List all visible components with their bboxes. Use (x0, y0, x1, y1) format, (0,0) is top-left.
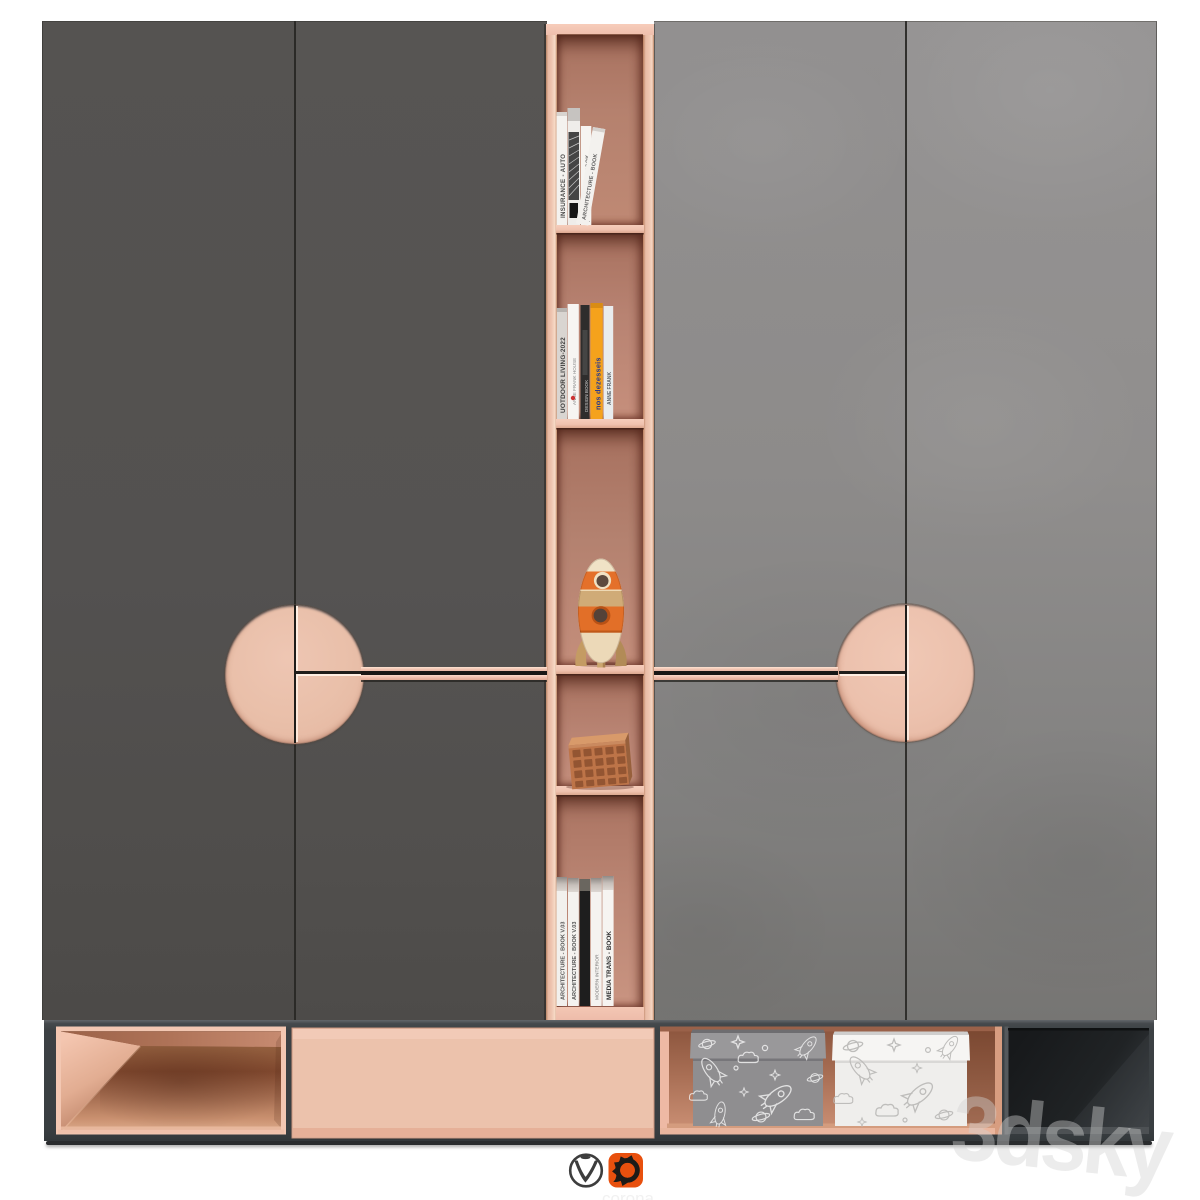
svg-text:MEDIA TRANS - BOOK: MEDIA TRANS - BOOK (606, 931, 613, 1000)
svg-text:UOTDOOR LIVING-2022: UOTDOOR LIVING-2022 (560, 337, 567, 413)
svg-text:INSURANCE - AUTO: INSURANCE - AUTO (560, 154, 567, 218)
svg-text:3dsky: 3dsky (947, 1075, 1178, 1200)
svg-text:corona: corona (602, 1189, 655, 1200)
svg-text:ANNE FRANK: ANNE FRANK (607, 372, 613, 405)
svg-text:ARCHITECTURE - BOOK V.03: ARCHITECTURE - BOOK V.03 (572, 922, 578, 1000)
svg-text:MODERN INTERIOR: MODERN INTERIOR (595, 954, 601, 1000)
svg-text:nos dezesseis: nos dezesseis (594, 357, 603, 410)
svg-text:DESIGN BOOK: DESIGN BOOK (584, 379, 589, 412)
svg-text:ARCHITECTURE - BOOK V.03: ARCHITECTURE - BOOK V.03 (561, 922, 567, 1000)
